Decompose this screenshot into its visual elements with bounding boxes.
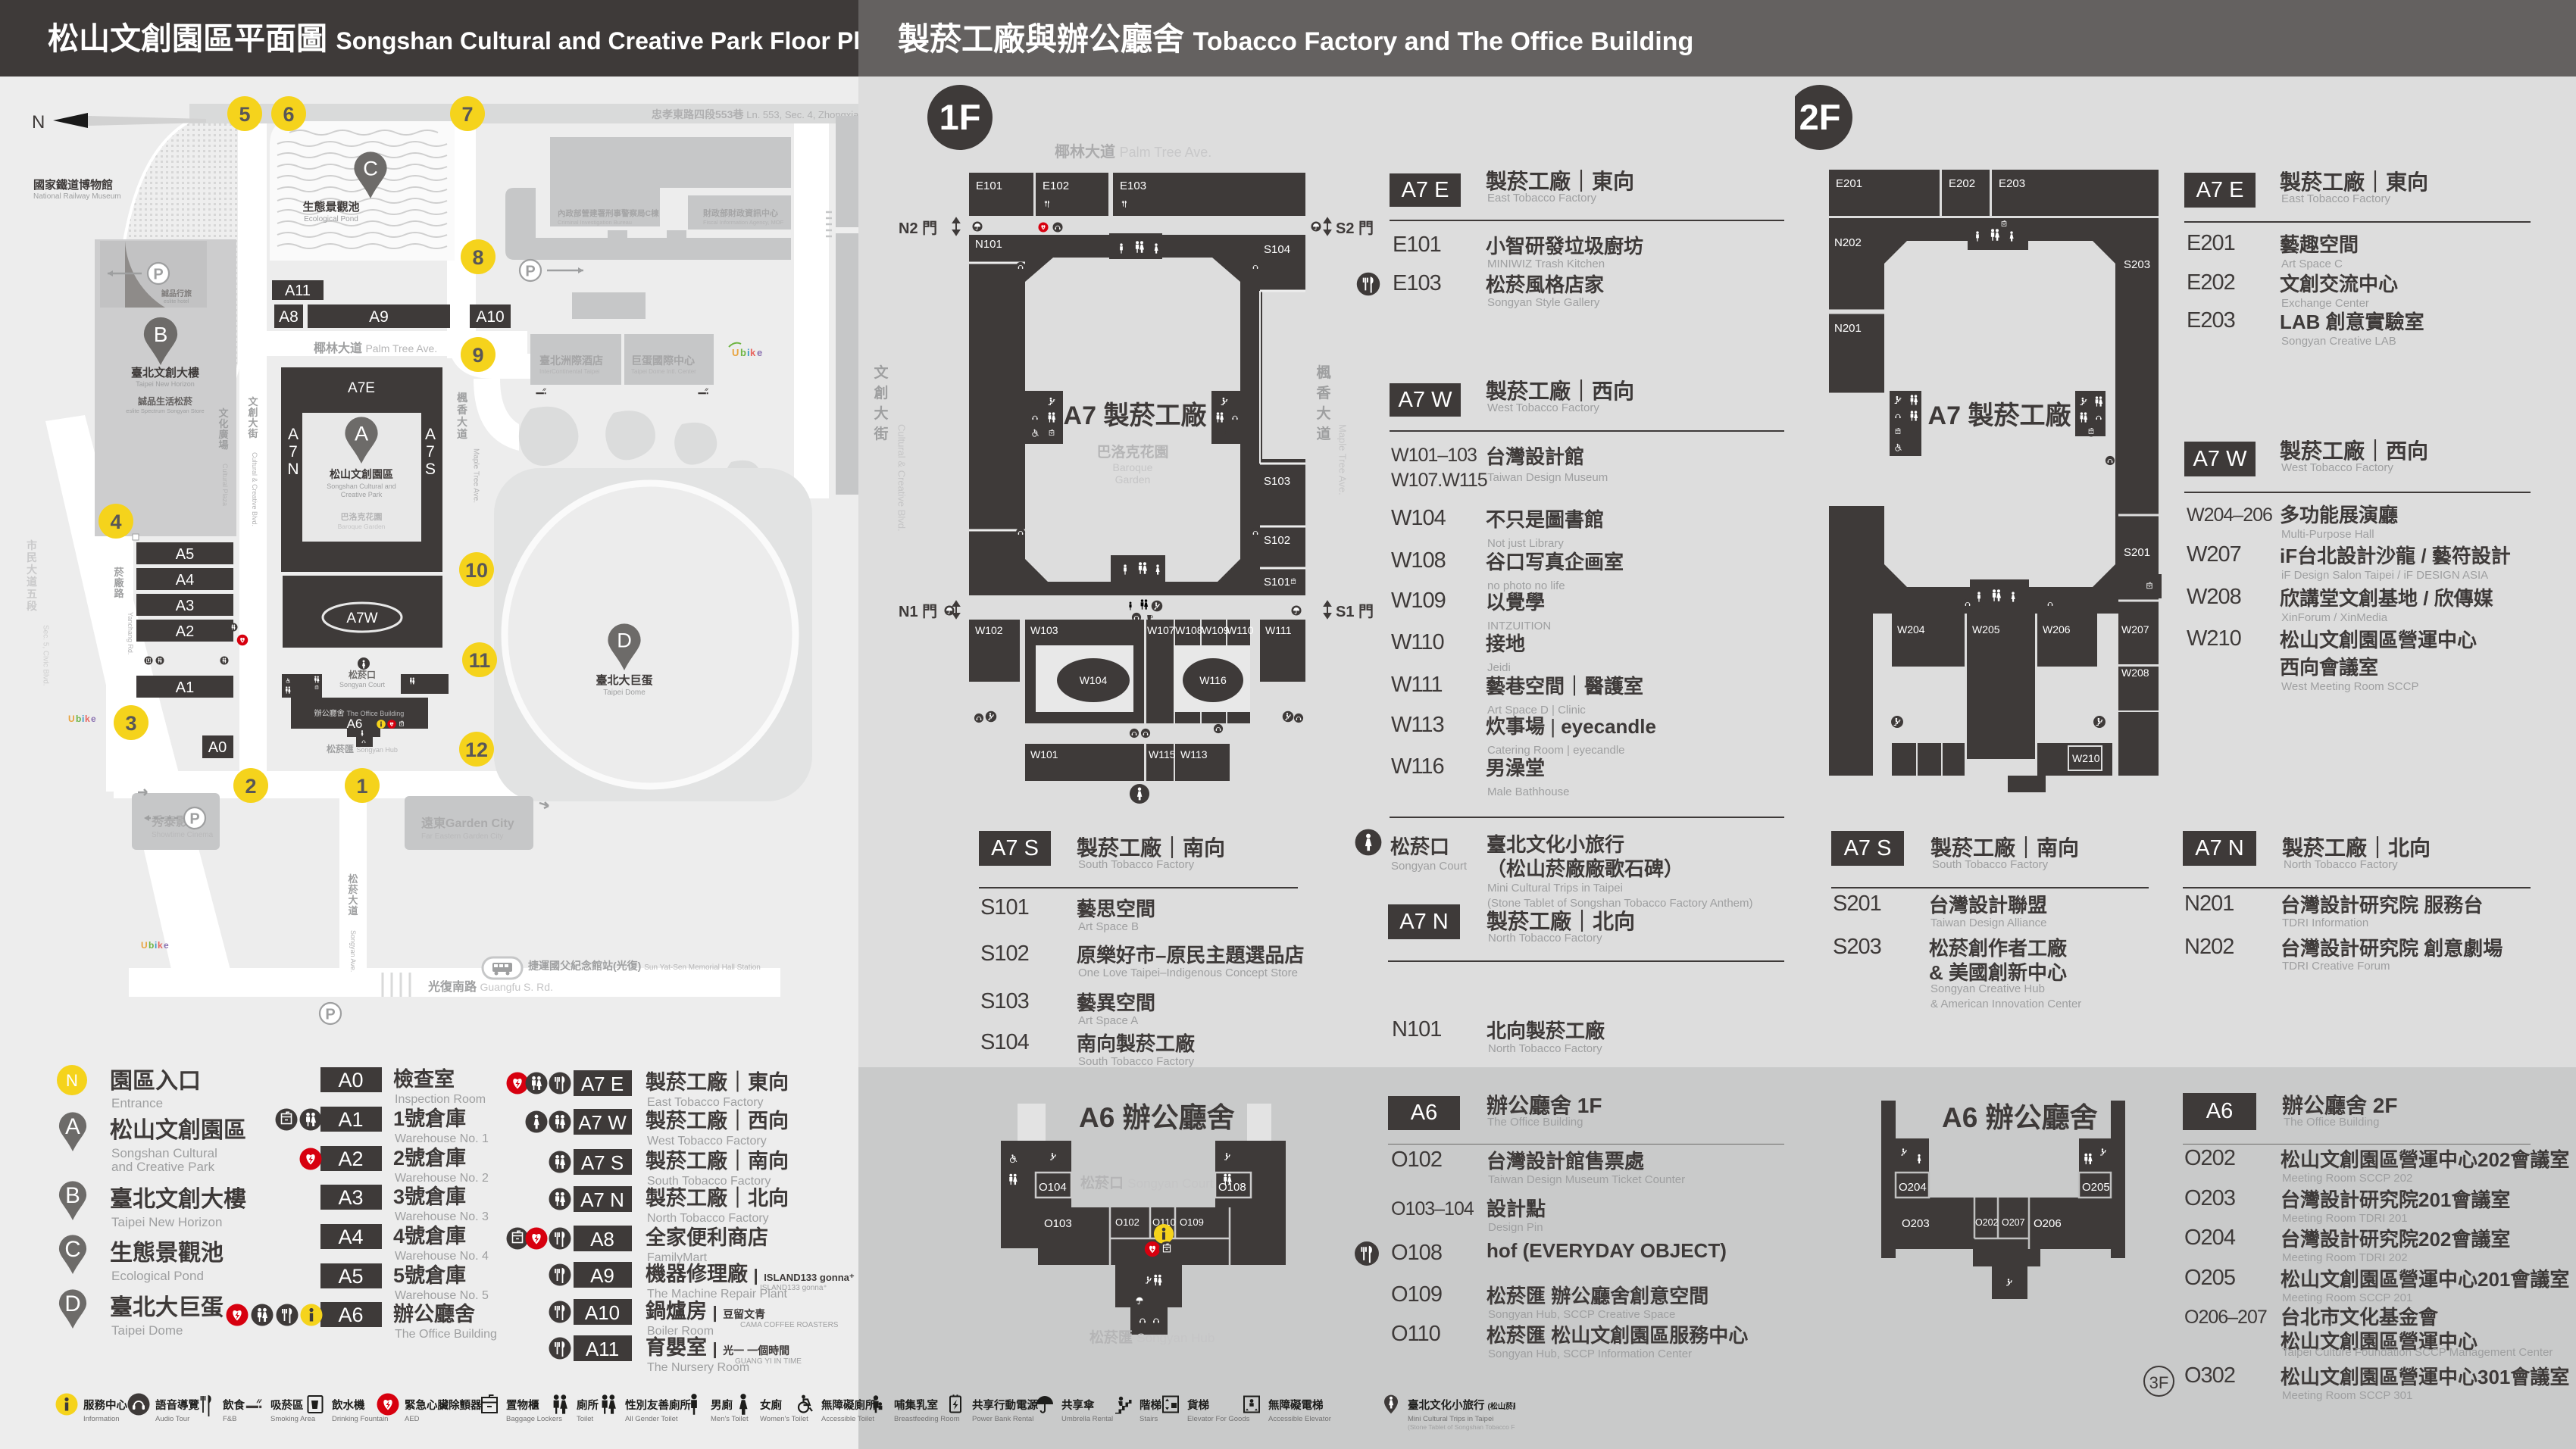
svg-text:W110: W110 [1227,624,1254,636]
svg-text:貨梯: 貨梯 [1187,1398,1209,1412]
svg-text:Boiler Room: Boiler Room [647,1325,714,1338]
svg-text:7: 7 [289,443,298,461]
svg-text:CAMA COFFEE ROASTERS: CAMA COFFEE ROASTERS [740,1321,839,1329]
svg-text:巴洛克花園: 巴洛克花園 [341,511,383,522]
svg-text:A5: A5 [338,1265,363,1288]
svg-text:b: b [76,714,81,724]
svg-text:E202: E202 [1949,177,1975,190]
svg-text:Stairs: Stairs [1140,1415,1158,1423]
svg-text:A: A [288,426,299,443]
svg-text:無障礙廁所: 無障礙廁所 [821,1398,877,1412]
svg-text:文: 文 [248,396,258,408]
svg-text:A: A [425,426,436,443]
svg-text:無障礙電梯: 無障礙電梯 [1268,1398,1324,1412]
svg-text:大: 大 [27,564,37,576]
svg-text:N202: N202 [1834,236,1862,249]
svg-text:e: e [164,940,169,951]
svg-text:階梯: 階梯 [1140,1398,1161,1412]
svg-text:2F: 2F [1799,97,1841,137]
svg-text:eslite Spectrum Songyan Store: eslite Spectrum Songyan Store [126,408,204,414]
svg-text:InterContinental Taipei: InterContinental Taipei [539,368,600,375]
svg-text:A5: A5 [176,546,194,563]
svg-text:2號倉庫: 2號倉庫 [393,1146,466,1170]
svg-text:男廁: 男廁 [711,1398,733,1412]
svg-text:S201: S201 [2124,546,2150,559]
svg-text:b: b [740,347,746,358]
svg-text:內政部營建署刑事警察局C棟: 內政部營建署刑事警察局C棟 [558,208,659,218]
svg-text:大: 大 [457,416,467,428]
svg-text:e: e [757,347,762,358]
svg-text:O207: O207 [2002,1217,2025,1228]
svg-text:E103: E103 [1120,180,1146,192]
svg-text:W107: W107 [1147,624,1175,636]
svg-text:哺集乳室: 哺集乳室 [894,1398,938,1412]
svg-text:椰林大道 Palm Tree Ave.: 椰林大道 Palm Tree Ave. [1055,142,1211,161]
svg-text:S1 門: S1 門 [1336,603,1374,620]
svg-text:捷運國父紀念館站(光復) Sun Yat-Sen Memor: 捷運國父紀念館站(光復) Sun Yat-Sen Memorial Hall S… [528,960,761,972]
svg-text:W206: W206 [2043,623,2071,635]
svg-text:A8: A8 [279,308,299,326]
svg-text:Far Eastern Garden City: Far Eastern Garden City [421,832,503,841]
svg-text:W208: W208 [2121,667,2149,679]
svg-text:A11: A11 [285,283,311,299]
svg-text:4號倉庫: 4號倉庫 [393,1224,466,1248]
svg-text:文: 文 [874,364,889,381]
svg-text:菸: 菸 [348,884,358,895]
svg-text:A1: A1 [338,1108,363,1131]
svg-text:臺北大巨蛋: 臺北大巨蛋 [596,673,652,687]
svg-text:O202: O202 [1975,1217,1999,1228]
svg-text:Elevator For Goods: Elevator For Goods [1187,1415,1250,1423]
svg-text:菸: 菸 [114,567,124,578]
svg-text:5號倉庫: 5號倉庫 [393,1263,466,1287]
svg-text:National Railway Museum: National Railway Museum [33,192,121,201]
svg-text:E203: E203 [1999,177,2025,190]
svg-text:共享傘: 共享傘 [1061,1398,1095,1412]
svg-text:W108: W108 [1175,624,1203,636]
svg-text:機器修理廠 | ISLAND133 gonna⁺: 機器修理廠 | ISLAND133 gonna⁺ [646,1262,855,1285]
svg-text:N: N [32,112,45,133]
svg-text:A0: A0 [338,1069,363,1091]
svg-text:C: C [64,1237,80,1262]
svg-text:松菸口 Songyan Court: 松菸口 Songyan Court [1080,1174,1214,1191]
svg-text:女廁: 女廁 [760,1398,782,1412]
svg-text:廁所: 廁所 [577,1398,599,1412]
svg-text:A7 製菸工廠: A7 製菸工廠 [1064,401,1207,430]
svg-text:A6 辦公廳舍: A6 辦公廳舍 [1942,1101,2098,1133]
svg-text:Warehouse No. 5: Warehouse No. 5 [395,1289,489,1302]
svg-text:eslite hotel: eslite hotel [164,299,189,304]
svg-text:W109: W109 [1202,624,1230,636]
svg-text:市: 市 [27,539,37,551]
svg-text:O204: O204 [1899,1181,1927,1194]
svg-text:k: k [158,940,163,951]
svg-text:Baggage Lockers: Baggage Lockers [506,1415,562,1423]
svg-text:Showtime Cinema: Showtime Cinema [152,831,214,839]
svg-text:5: 5 [239,103,250,126]
svg-text:W204: W204 [1897,623,1925,635]
svg-text:Yanchang Rd.: Yanchang Rd. [127,612,134,654]
svg-text:The Office Building: The Office Building [395,1328,497,1341]
svg-text:吸菸區: 吸菸區 [270,1398,304,1412]
svg-text:飲食: 飲食 [222,1398,245,1412]
svg-text:楓: 楓 [1316,364,1331,381]
svg-text:道: 道 [457,428,467,440]
svg-text:West Tobacco Factory: West Tobacco Factory [647,1135,767,1148]
svg-text:S101: S101 [1264,576,1290,589]
svg-text:Warehouse No. 2: Warehouse No. 2 [395,1172,489,1185]
svg-text:A3: A3 [338,1186,363,1209]
svg-text:W102: W102 [975,624,1003,636]
svg-text:and Creative Park: and Creative Park [111,1160,215,1174]
svg-text:園區入口: 園區入口 [110,1069,201,1094]
svg-text:Ecological Pond: Ecological Pond [304,215,358,223]
svg-text:忠孝東路四段553巷 Ln. 553, Sec. 4, Zh: 忠孝東路四段553巷 Ln. 553, Sec. 4, Zhongxiao E.… [652,108,858,120]
svg-text:Ecological Pond: Ecological Pond [111,1269,204,1283]
svg-text:Mini Cultural Trips in Taipei: Mini Cultural Trips in Taipei [1408,1415,1493,1423]
svg-text:松菸口: 松菸口 [349,669,376,680]
svg-text:W101: W101 [1030,748,1058,760]
svg-text:臺北文創大樓: 臺北文創大樓 [131,366,199,379]
svg-text:Cultural Plaza: Cultural Plaza [221,464,229,506]
svg-text:育嬰室 | 光一 一個時間: 育嬰室 | 光一 一個時間 [646,1335,789,1359]
svg-text:A7W: A7W [346,611,377,626]
svg-text:Inspection Room: Inspection Room [395,1093,486,1106]
svg-text:Information: Information [83,1415,120,1423]
svg-text:N1 門: N1 門 [899,603,937,620]
svg-text:O109: O109 [1180,1216,1204,1228]
svg-text:2: 2 [245,775,256,798]
svg-text:South Tobacco Factory: South Tobacco Factory [647,1175,771,1188]
svg-text:大: 大 [1316,404,1330,422]
svg-text:辦公廳舍: 辦公廳舍 [393,1302,476,1326]
svg-text:生態景觀池: 生態景觀池 [110,1240,224,1266]
svg-text:A2: A2 [338,1148,363,1170]
svg-text:Maple Tree Ave.: Maple Tree Ave. [472,448,480,503]
svg-text:場: 場 [218,439,228,451]
svg-text:Breastfeeding Room: Breastfeeding Room [894,1415,960,1423]
svg-text:道: 道 [1316,425,1330,442]
svg-text:創: 創 [247,407,258,418]
svg-text:A7E: A7E [348,380,375,396]
svg-text:Umbrella Rental: Umbrella Rental [1061,1415,1113,1423]
svg-text:S2 門: S2 門 [1336,220,1374,237]
svg-text:1: 1 [356,775,367,798]
svg-text:F&B: F&B [223,1415,236,1423]
svg-text:O206: O206 [2034,1217,2062,1230]
svg-text:W104: W104 [1080,674,1108,686]
svg-text:N2 門: N2 門 [899,220,937,237]
svg-text:製菸工廠｜北向: 製菸工廠｜北向 [646,1186,789,1210]
svg-text:松山文創園區: 松山文創園區 [330,468,393,480]
svg-text:East Tobacco Factory: East Tobacco Factory [647,1096,764,1109]
svg-text:道: 道 [27,576,37,588]
svg-text:A6: A6 [338,1304,363,1326]
svg-text:9: 9 [472,344,483,367]
svg-text:A9: A9 [369,308,389,326]
svg-text:Taipei Dome Intl. Center: Taipei Dome Intl. Center [631,368,696,375]
svg-text:Songyan Ave.: Songyan Ave. [349,930,357,972]
svg-text:Fiscal Information Agency, MOF: Fiscal Information Agency, MOF [703,219,784,226]
svg-text:10: 10 [465,559,488,582]
svg-text:N101: N101 [975,238,1002,251]
svg-text:Taipei Dome: Taipei Dome [111,1323,183,1338]
svg-text:松山文創園區: 松山文創園區 [110,1117,246,1143]
svg-text:Drinking Fountain: Drinking Fountain [332,1415,388,1423]
svg-text:U: U [68,714,75,724]
svg-text:i: i [82,714,84,724]
svg-text:五: 五 [27,588,37,600]
svg-text:Baroque: Baroque [1113,461,1153,473]
svg-text:服務中心: 服務中心 [83,1398,127,1412]
svg-text:W111: W111 [1265,624,1292,636]
svg-text:12: 12 [465,739,488,761]
svg-text:大: 大 [348,895,358,906]
svg-text:Garden: Garden [1115,473,1151,486]
svg-text:Songshan Cultural and: Songshan Cultural and [327,482,396,490]
svg-text:財政部財政資訊中心: 財政部財政資訊中心 [702,208,778,218]
svg-text:AED: AED [405,1415,420,1423]
svg-text:Toilet: Toilet [577,1415,594,1423]
svg-text:Maple Tree Ave.: Maple Tree Ave. [1337,424,1349,495]
svg-text:Power Bank Rental: Power Bank Rental [972,1415,1033,1423]
svg-text:共享行動電源: 共享行動電源 [972,1398,1038,1412]
svg-text:香: 香 [1315,385,1331,401]
svg-text:民: 民 [27,551,37,564]
svg-text:廠: 廠 [114,577,124,589]
svg-text:O103: O103 [1044,1217,1072,1230]
svg-text:7: 7 [461,103,473,126]
svg-text:W116: W116 [1199,674,1227,686]
svg-text:街: 街 [873,425,888,442]
svg-text:N: N [287,461,299,478]
svg-text:k: k [750,347,756,358]
svg-text:誠品行旅: 誠品行旅 [161,289,192,298]
svg-text:Cultural & Creative Blvd.: Cultural & Creative Blvd. [896,424,908,532]
svg-text:W115: W115 [1149,748,1176,760]
svg-text:A10: A10 [476,308,504,326]
svg-text:W207: W207 [2121,623,2149,635]
svg-text:國家鐵道博物館: 國家鐵道博物館 [33,178,113,192]
svg-text:性別友善廁所: 性別友善廁所 [625,1398,691,1412]
svg-text:臺北洲際酒店: 臺北洲際酒店 [539,354,603,367]
svg-text:3號倉庫: 3號倉庫 [393,1185,466,1208]
svg-text:Accessible Toilet: Accessible Toilet [821,1415,874,1423]
svg-text:A0: A0 [208,739,227,756]
svg-text:街: 街 [247,428,258,439]
svg-text:製菸工廠｜西向: 製菸工廠｜西向 [646,1109,789,1132]
svg-text:6: 6 [283,103,294,126]
svg-text:飲水機: 飲水機 [331,1398,365,1412]
svg-text:W113: W113 [1180,748,1208,760]
svg-text:Men's Toilet: Men's Toilet [711,1415,749,1423]
svg-text:A7 W: A7 W [578,1111,627,1134]
svg-text:A1: A1 [176,679,194,696]
svg-text:S104: S104 [1264,243,1290,256]
svg-text:N: N [66,1071,78,1090]
svg-text:C: C [363,157,378,180]
svg-text:A8: A8 [590,1228,614,1251]
svg-text:A9: A9 [590,1264,614,1287]
svg-text:檢查室: 檢查室 [393,1067,455,1091]
svg-text:A7 N: A7 N [580,1188,624,1211]
svg-text:緊急心臟除顫器: 緊急心臟除顫器 [405,1398,482,1412]
svg-text:W210: W210 [2072,752,2100,764]
svg-text:(Stone Tablet of Songshan Toba: (Stone Tablet of Songshan Tobacco Factor… [1408,1423,1515,1431]
svg-text:Warehouse No. 4: Warehouse No. 4 [395,1250,489,1263]
svg-text:大: 大 [874,404,888,422]
svg-text:O203: O203 [1902,1217,1930,1230]
svg-text:A6 辦公廳舍: A6 辦公廳舍 [1079,1101,1235,1133]
svg-text:光復南路 Guangfu S. Rd.: 光復南路 Guangfu S. Rd. [427,979,553,994]
svg-text:i: i [155,940,157,951]
svg-text:Entrance: Entrance [111,1096,163,1110]
svg-text:A: A [355,422,369,445]
svg-text:S103: S103 [1264,475,1290,488]
svg-text:D: D [617,629,632,652]
svg-text:Sec. 5, Civic Blvd.: Sec. 5, Civic Blvd. [42,625,50,686]
svg-text:松: 松 [348,873,358,885]
svg-text:ISLAND133 gonna⁺: ISLAND133 gonna⁺ [760,1284,827,1292]
svg-text:松菸匯 Songyan Hub: 松菸匯 Songyan Hub [1089,1329,1215,1344]
svg-text:4: 4 [110,511,121,533]
svg-text:臺北大巨蛋: 臺北大巨蛋 [110,1295,224,1320]
svg-text:製菸工廠｜南向: 製菸工廠｜南向 [646,1149,789,1173]
svg-text:7: 7 [426,443,435,461]
svg-text:S102: S102 [1264,534,1290,547]
svg-text:Warehouse No. 1: Warehouse No. 1 [395,1132,489,1145]
svg-text:A2: A2 [176,623,194,640]
svg-text:Women's Toilet: Women's Toilet [760,1415,808,1423]
svg-text:E201: E201 [1836,177,1862,190]
svg-text:FamilyMart: FamilyMart [647,1251,708,1264]
svg-text:1F: 1F [939,97,981,137]
svg-text:U: U [141,940,148,951]
svg-text:A: A [65,1114,80,1139]
svg-text:Cultural & Creative Blvd.: Cultural & Creative Blvd. [251,452,258,526]
svg-text:O104: O104 [1039,1181,1067,1194]
svg-text:製菸工廠｜東向: 製菸工廠｜東向 [646,1070,789,1094]
svg-text:文: 文 [218,408,229,419]
svg-text:b: b [148,940,154,951]
svg-text:A10: A10 [585,1301,620,1324]
svg-text:B: B [154,323,168,346]
svg-text:A7 S: A7 S [581,1151,624,1174]
svg-text:Songshan Cultural: Songshan Cultural [111,1146,217,1160]
svg-text:O108: O108 [1218,1181,1246,1194]
svg-text:創: 創 [874,384,888,401]
svg-text:11: 11 [469,649,491,672]
svg-text:S: S [425,461,436,478]
svg-text:語音導覽: 語音導覽 [155,1398,199,1412]
svg-text:W103: W103 [1030,624,1058,636]
svg-text:All Gender Toilet: All Gender Toilet [625,1415,678,1423]
svg-text:GUANG YI IN TIME: GUANG YI IN TIME [735,1357,802,1366]
svg-text:North Tobacco Factory: North Tobacco Factory [647,1212,769,1225]
svg-text:生態景觀池: 生態景觀池 [302,200,359,214]
svg-text:誠品生活松菸: 誠品生活松菸 [138,395,193,407]
svg-text:A7 製菸工廠: A7 製菸工廠 [1928,401,2071,430]
svg-text:e: e [91,714,96,724]
svg-text:巨蛋國際中心: 巨蛋國際中心 [631,354,695,367]
svg-text:全家便利商店: 全家便利商店 [645,1226,768,1249]
svg-text:路: 路 [114,588,124,599]
svg-text:D: D [64,1291,80,1316]
svg-text:O205: O205 [2082,1181,2110,1194]
svg-text:S203: S203 [2124,258,2150,271]
svg-text:A6: A6 [347,717,363,731]
svg-text:U: U [732,347,739,358]
svg-text:B: B [65,1183,80,1208]
svg-text:A4: A4 [176,572,194,589]
svg-text:Smoking Area: Smoking Area [270,1415,316,1423]
svg-text:E102: E102 [1043,180,1069,192]
svg-text:Accessible Elevator: Accessible Elevator [1268,1415,1331,1423]
svg-text:N201: N201 [1834,322,1862,335]
svg-text:A11: A11 [586,1338,619,1360]
svg-text:8: 8 [472,246,483,269]
svg-text:巴洛克花園: 巴洛克花園 [1096,443,1168,461]
svg-text:O102: O102 [1115,1216,1140,1228]
svg-text:Taipei Dome: Taipei Dome [603,689,646,697]
svg-text:Creative Park: Creative Park [341,491,383,498]
svg-text:楓: 楓 [457,392,468,404]
svg-text:遠東Garden City: 遠東Garden City [421,816,514,830]
svg-text:臺北文創大樓: 臺北文創大樓 [110,1186,246,1212]
svg-text:1號倉庫: 1號倉庫 [393,1107,466,1130]
svg-text:大: 大 [248,417,258,429]
svg-text:Taipei New Horizon: Taipei New Horizon [136,380,195,388]
svg-text:A3: A3 [176,598,194,614]
svg-text:置物櫃: 置物櫃 [506,1398,539,1412]
svg-text:The Nursery Room: The Nursery Room [647,1361,749,1374]
svg-text:道: 道 [348,905,358,917]
svg-text:3: 3 [125,712,136,735]
svg-text:A4: A4 [338,1226,363,1248]
svg-text:段: 段 [27,600,37,612]
svg-text:廣: 廣 [218,429,228,440]
svg-text:臺北文化小旅行 (松山菸廠廠歌石碑): 臺北文化小旅行 (松山菸廠廠歌石碑) [1408,1398,1515,1412]
svg-text:Taipei New Horizon: Taipei New Horizon [111,1215,222,1229]
svg-text:Baroque Garden: Baroque Garden [338,523,386,530]
svg-text:k: k [85,714,90,724]
svg-text:W205: W205 [1972,623,2000,635]
svg-text:香: 香 [456,404,468,416]
svg-text:Songyan Court: Songyan Court [339,681,386,689]
svg-text:鍋爐房 | 豆留文青: 鍋爐房 | 豆留文青 [646,1299,765,1323]
svg-text:E101: E101 [976,180,1002,192]
svg-text:化: 化 [218,418,228,429]
svg-text:Audio Tour: Audio Tour [155,1415,189,1423]
svg-text:椰林大道 Palm Tree Ave.: 椰林大道 Palm Tree Ave. [314,341,437,355]
svg-text:Warehouse No. 3: Warehouse No. 3 [395,1210,489,1223]
svg-text:Criminal Investigation Bureau: Criminal Investigation Bureau [558,219,632,226]
svg-text:A7 E: A7 E [581,1073,624,1095]
